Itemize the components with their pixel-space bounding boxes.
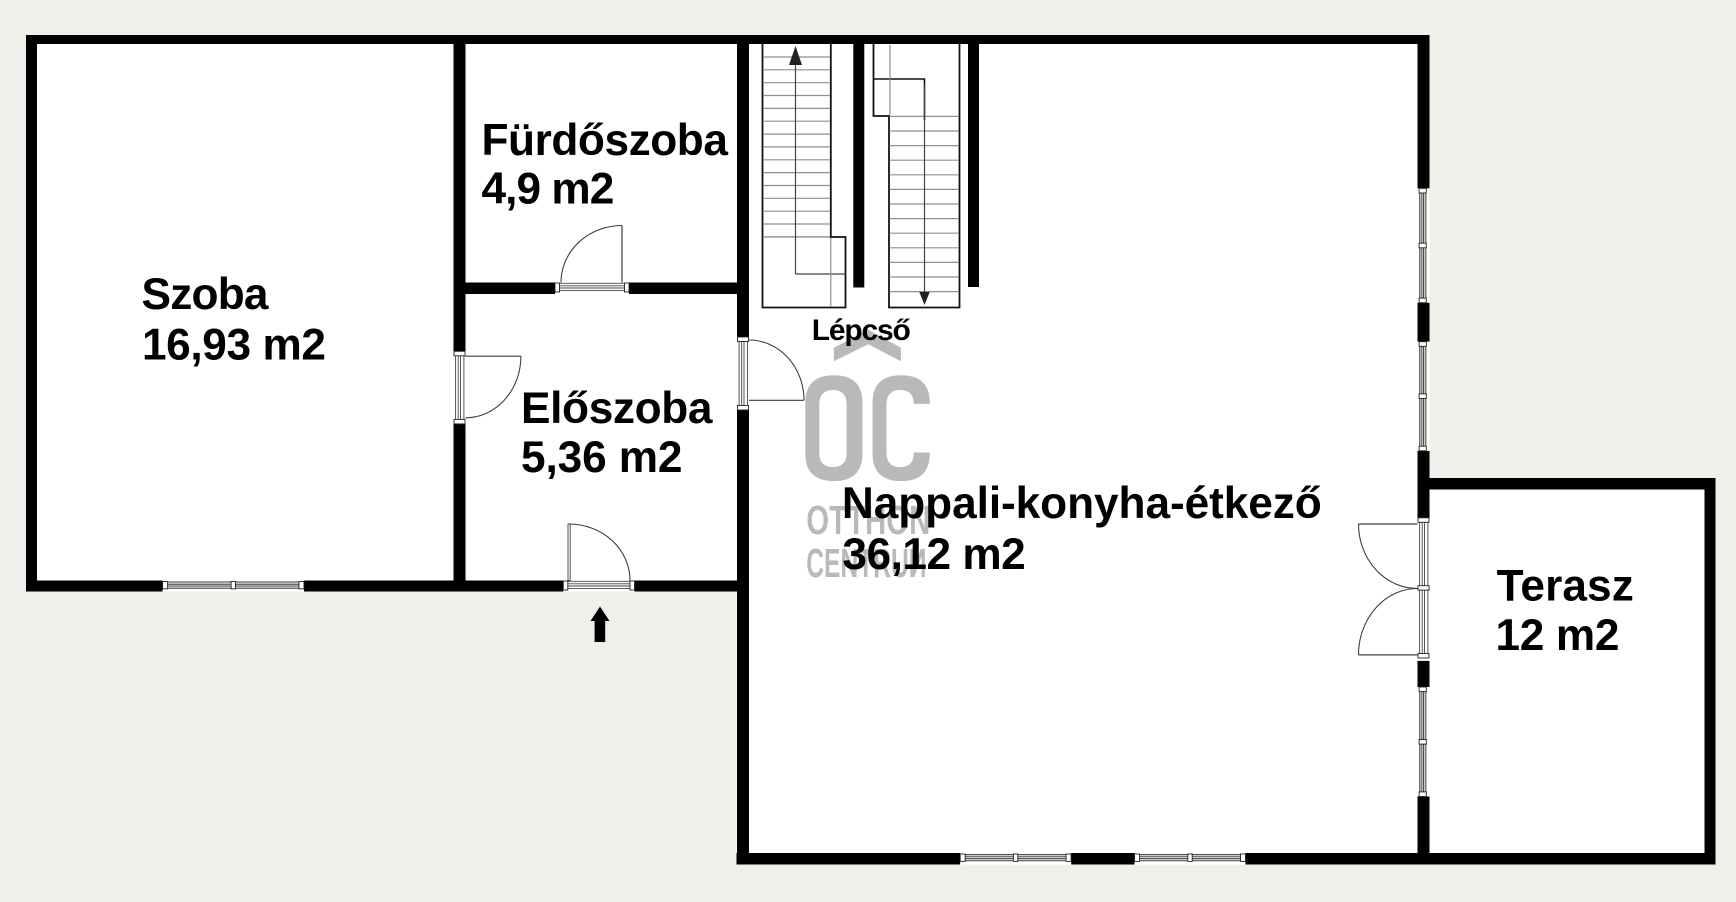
svg-text:Terasz: Terasz: [1497, 562, 1634, 611]
svg-text:12 m2: 12 m2: [1496, 611, 1620, 660]
svg-text:4,9 m2: 4,9 m2: [482, 164, 615, 213]
svg-text:Nappali-konyha-étkező: Nappali-konyha-étkező: [842, 479, 1322, 528]
svg-text:Előszoba: Előszoba: [521, 384, 713, 433]
svg-text:36,12 m2: 36,12 m2: [842, 530, 1025, 579]
svg-text:Fürdőszoba: Fürdőszoba: [482, 116, 729, 165]
svg-text:16,93 m2: 16,93 m2: [142, 320, 326, 369]
svg-text:Szoba: Szoba: [142, 270, 269, 319]
svg-text:5,36 m2: 5,36 m2: [521, 433, 683, 482]
svg-text:Lépcső: Lépcső: [812, 314, 911, 347]
